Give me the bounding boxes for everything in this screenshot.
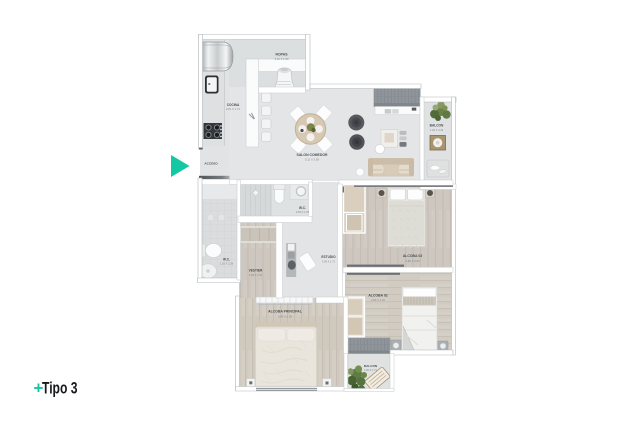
svg-text:ACCESO: ACCESO [204,162,218,166]
svg-text:2.81 X 1.71: 2.81 X 1.71 [226,107,241,111]
svg-text:1.80 X 1.71: 1.80 X 1.71 [364,369,377,372]
svg-text:1.96 X 2.19: 1.96 X 2.19 [249,273,263,277]
svg-text:VESTIER: VESTIER [249,269,263,273]
svg-text:ALCOBA 02: ALCOBA 02 [368,294,387,298]
svg-text:SALON COMEDOR: SALON COMEDOR [297,153,328,157]
svg-text:BALCON: BALCON [430,124,444,128]
svg-text:2.80 X 3.00: 2.80 X 3.00 [405,259,420,263]
svg-text:1.20 X 2.28: 1.20 X 2.28 [220,261,234,265]
svg-text:3.06 X 1.71: 3.06 X 1.71 [322,259,336,263]
svg-text:ROPAS: ROPAS [276,53,289,57]
svg-text:ESTUDIO: ESTUDIO [321,255,336,259]
svg-text:Tipo 3: Tipo 3 [42,379,78,398]
svg-text:2.56 X 1.05: 2.56 X 1.05 [296,210,310,214]
svg-text:3.10 X 1.50: 3.10 X 1.50 [274,57,289,61]
svg-text:ALCOBA PRINCIPAL: ALCOBA PRINCIPAL [268,310,302,314]
svg-text:COCINA: COCINA [227,103,240,107]
svg-text:W.C.: W.C. [223,257,230,261]
svg-text:ALCOBA 03: ALCOBA 03 [403,254,422,258]
svg-text:3.45 X 3.28: 3.45 X 3.28 [278,315,293,319]
svg-text:2.80 X 3.20: 2.80 X 3.20 [371,298,386,302]
svg-text:W.C.: W.C. [299,206,306,210]
svg-text:5.11 X 3.58: 5.11 X 3.58 [305,158,319,162]
svg-text:BALCON: BALCON [364,364,378,368]
svg-text:1.26 X 4.43: 1.26 X 4.43 [430,128,444,132]
